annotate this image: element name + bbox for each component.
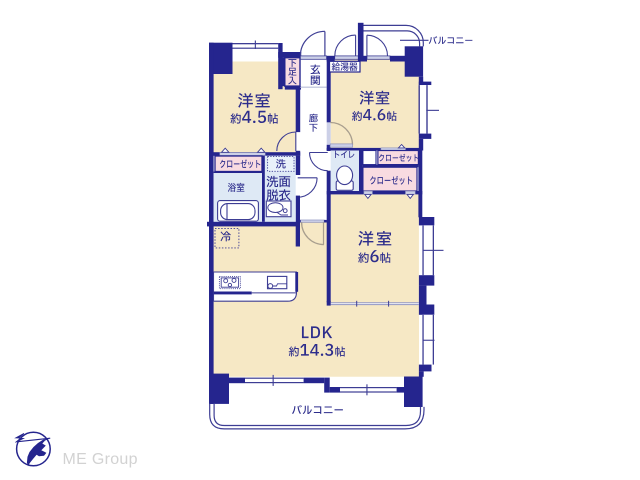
svg-text:ME Group: ME Group xyxy=(63,451,138,468)
